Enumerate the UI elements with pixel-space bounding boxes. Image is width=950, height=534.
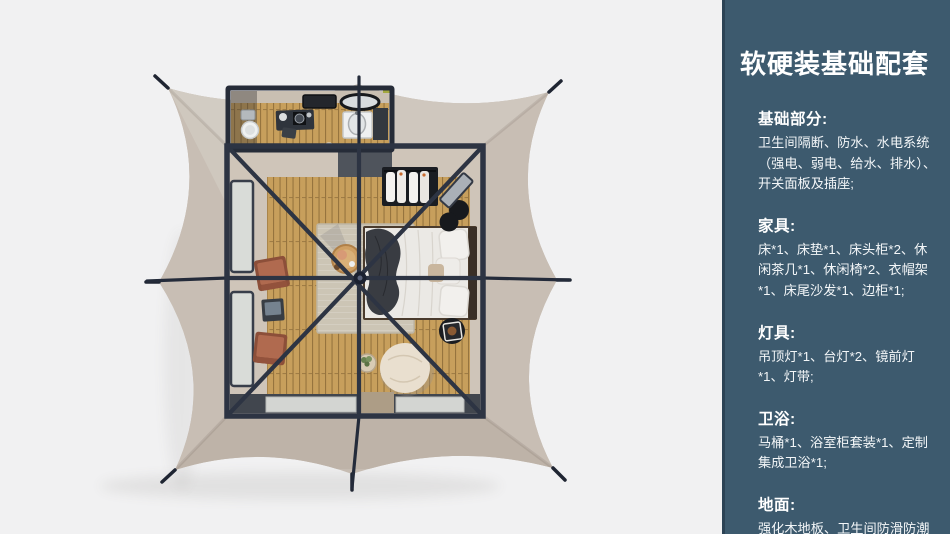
- bedside-stool: [440, 213, 459, 232]
- vanity-mirror-panel: [303, 95, 336, 108]
- door-mat-right: [396, 397, 464, 412]
- section-heading: 基础部分:: [758, 107, 938, 129]
- ground-shadow: [100, 472, 500, 500]
- section-body: 强化木地板、卫生间防滑防潮石塑板;: [758, 519, 938, 534]
- vanity-stool: [281, 127, 296, 139]
- side-table: [439, 318, 465, 344]
- section-heading: 灯具:: [758, 321, 938, 343]
- shower-cabinet: [373, 108, 388, 140]
- section-lighting: 灯具: 吊顶灯*1、台灯*2、镜前灯*1、灯带;: [758, 321, 938, 388]
- section-heading: 卫浴:: [758, 407, 938, 429]
- section-bathroom: 卫浴: 马桶*1、浴室柜套装*1、定制集成卫浴*1;: [758, 407, 938, 474]
- tea-table: [261, 298, 284, 321]
- window-upper: [231, 181, 253, 272]
- section-heading: 家具:: [758, 214, 938, 236]
- section-body: 床*1、床垫*1、床头柜*2、休闲茶几*1、休闲椅*2、衣帽架*1、床尾沙发*1…: [758, 240, 938, 302]
- section-flooring: 地面: 强化木地板、卫生间防滑防潮石塑板;: [758, 493, 938, 534]
- headboard: [469, 227, 477, 319]
- door-mat-left: [266, 397, 356, 412]
- garment: [409, 172, 418, 203]
- section-basics: 基础部分: 卫生间隔断、防水、水电系统（强电、弱电、给水、排水）、开关面板及插座…: [758, 107, 938, 195]
- slide: 软硬装基础配套 基础部分: 卫生间隔断、防水、水电系统（强电、弱电、给水、排水）…: [0, 0, 950, 534]
- window-lower: [231, 292, 253, 386]
- tent-top-view-render: [0, 0, 722, 534]
- bathroom: [228, 88, 392, 150]
- spec-panel: 软硬装基础配套 基础部分: 卫生间隔断、防水、水电系统（强电、弱电、给水、排水）…: [722, 0, 950, 534]
- lounge-chair: [253, 255, 290, 291]
- section-furniture: 家具: 床*1、床垫*1、床头柜*2、休闲茶几*1、休闲椅*2、衣帽架*1、床尾…: [758, 214, 938, 302]
- ridge-pole-right: [483, 278, 569, 280]
- pillow: [439, 229, 470, 262]
- panel-title: 软硬装基础配套: [740, 44, 940, 81]
- section-body: 马桶*1、浴室柜套装*1、定制集成卫浴*1;: [758, 433, 938, 474]
- section-body: 卫生间隔断、防水、水电系统（强电、弱电、给水、排水）、开关面板及插座;: [758, 133, 938, 195]
- spec-sections: 基础部分: 卫生间隔断、防水、水电系统（强电、弱电、给水、排水）、开关面板及插座…: [758, 107, 938, 534]
- section-body: 吊顶灯*1、台灯*2、镜前灯*1、灯带;: [758, 347, 938, 388]
- frame-hub-cap: [358, 276, 363, 281]
- pillow: [439, 285, 470, 317]
- threshold-step: [358, 392, 394, 413]
- garment: [386, 172, 395, 202]
- section-heading: 地面:: [758, 493, 938, 515]
